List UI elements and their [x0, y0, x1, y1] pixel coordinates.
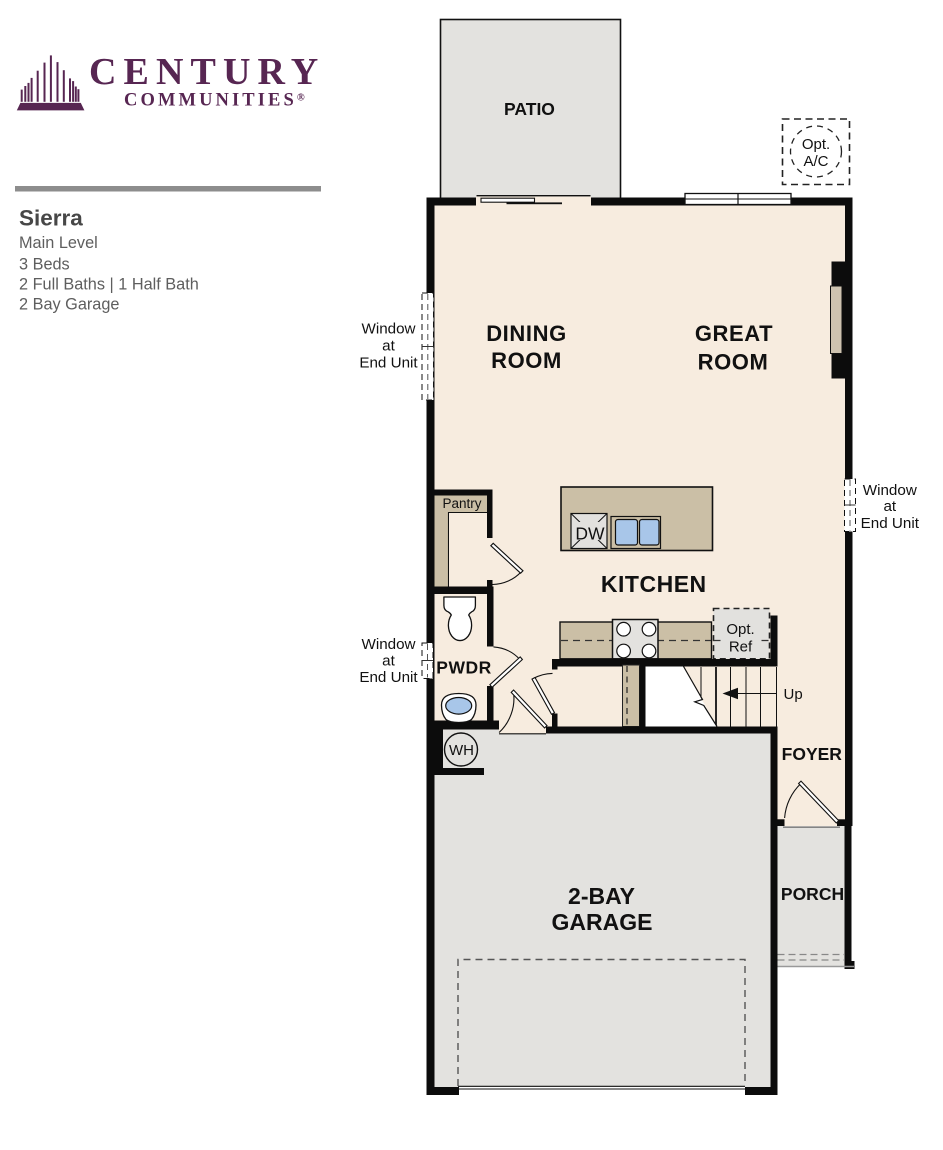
- svg-text:KITCHEN: KITCHEN: [601, 571, 707, 597]
- svg-text:Window: Window: [361, 321, 415, 338]
- svg-text:Window: Window: [361, 636, 415, 653]
- svg-text:End Unit: End Unit: [359, 669, 418, 686]
- svg-text:Ref: Ref: [729, 639, 753, 656]
- svg-text:DW: DW: [575, 524, 605, 544]
- svg-text:3 Beds: 3 Beds: [19, 256, 70, 274]
- svg-text:CENTURY: CENTURY: [89, 51, 325, 93]
- svg-text:DINING: DINING: [486, 321, 567, 346]
- svg-text:2 Bay Garage: 2 Bay Garage: [19, 296, 119, 314]
- svg-text:Sierra: Sierra: [19, 206, 83, 231]
- svg-text:FOYER: FOYER: [782, 744, 843, 764]
- svg-text:Opt.: Opt.: [802, 136, 830, 153]
- svg-text:ROOM: ROOM: [491, 348, 562, 373]
- svg-text:Opt.: Opt.: [726, 621, 754, 638]
- svg-text:2 Full Baths | 1 Half Bath: 2 Full Baths | 1 Half Bath: [19, 276, 199, 294]
- svg-text:2-BAY: 2-BAY: [568, 883, 635, 909]
- svg-text:GARAGE: GARAGE: [552, 909, 653, 935]
- svg-text:ROOM: ROOM: [698, 350, 769, 375]
- svg-text:A/C: A/C: [803, 153, 828, 170]
- svg-text:Pantry: Pantry: [442, 496, 481, 511]
- svg-text:GREAT: GREAT: [695, 321, 773, 346]
- svg-text:Main Level: Main Level: [19, 234, 98, 252]
- svg-text:PATIO: PATIO: [504, 99, 555, 119]
- svg-text:End Unit: End Unit: [861, 515, 920, 532]
- svg-text:at: at: [382, 653, 395, 670]
- svg-text:at: at: [883, 498, 896, 515]
- svg-text:COMMUNITIES®: COMMUNITIES®: [124, 91, 308, 111]
- svg-text:PORCH: PORCH: [781, 884, 844, 904]
- svg-text:Window: Window: [863, 482, 917, 499]
- svg-text:WH: WH: [449, 742, 474, 759]
- svg-text:at: at: [382, 338, 395, 355]
- svg-text:PWDR: PWDR: [436, 658, 491, 678]
- svg-text:Up: Up: [784, 686, 803, 703]
- svg-text:End Unit: End Unit: [359, 355, 418, 372]
